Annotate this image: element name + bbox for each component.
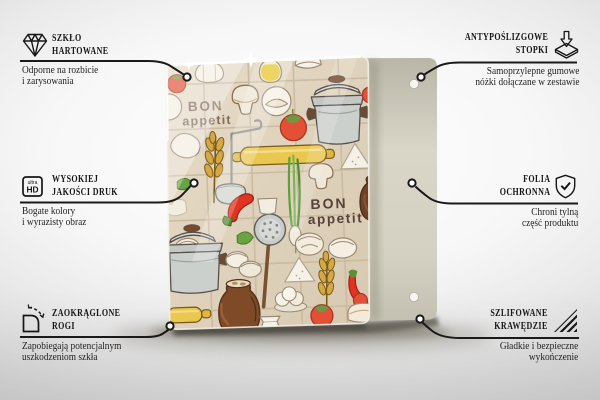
svg-text:HD: HD: [26, 185, 38, 195]
svg-text:appetit: appetit: [308, 210, 364, 227]
svg-text:BON: BON: [310, 195, 348, 212]
